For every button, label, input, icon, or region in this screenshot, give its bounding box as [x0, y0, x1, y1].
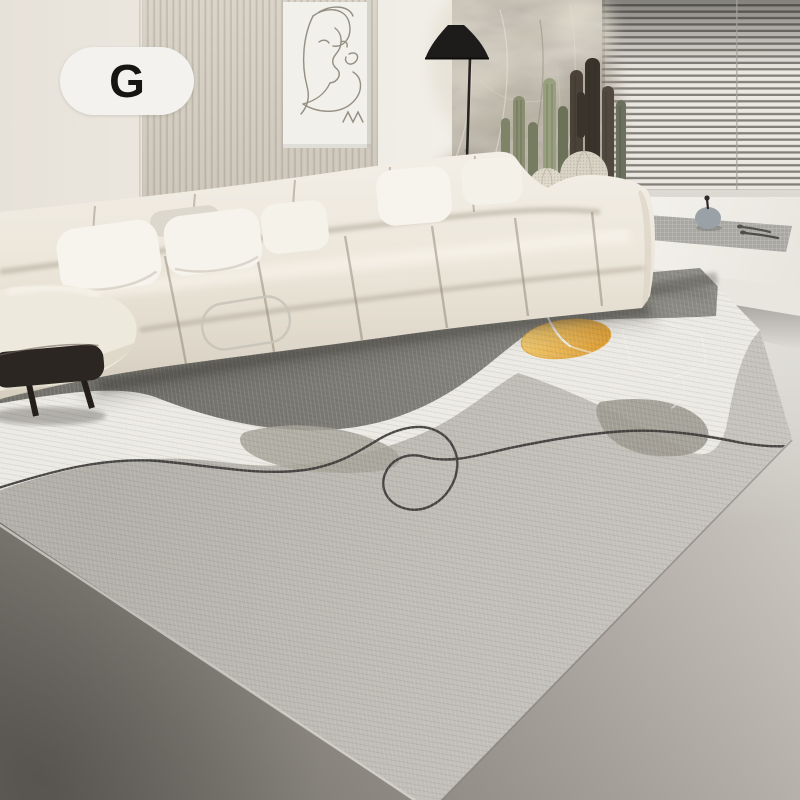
artwork-canvas: [283, 2, 371, 148]
window-frame-seam: [736, 0, 738, 191]
wall-artwork: [283, 2, 371, 148]
living-room-product-photo: G: [0, 0, 800, 800]
teapot: [695, 207, 721, 229]
lamp-shade-rim: [425, 58, 489, 60]
teapot-knob: [704, 195, 709, 200]
room-scene: [0, 0, 800, 800]
artwork-shadow: [367, 2, 371, 148]
sofa-pillow: [260, 199, 331, 256]
variant-badge: G: [60, 47, 194, 115]
sofa-pillow: [162, 206, 265, 277]
sofa-pillow: [375, 165, 454, 227]
blinds-top-shading: [596, 0, 800, 70]
variant-badge-label: G: [109, 58, 145, 104]
sofa-pillow: [460, 156, 523, 206]
window-blinds: [596, 0, 800, 197]
